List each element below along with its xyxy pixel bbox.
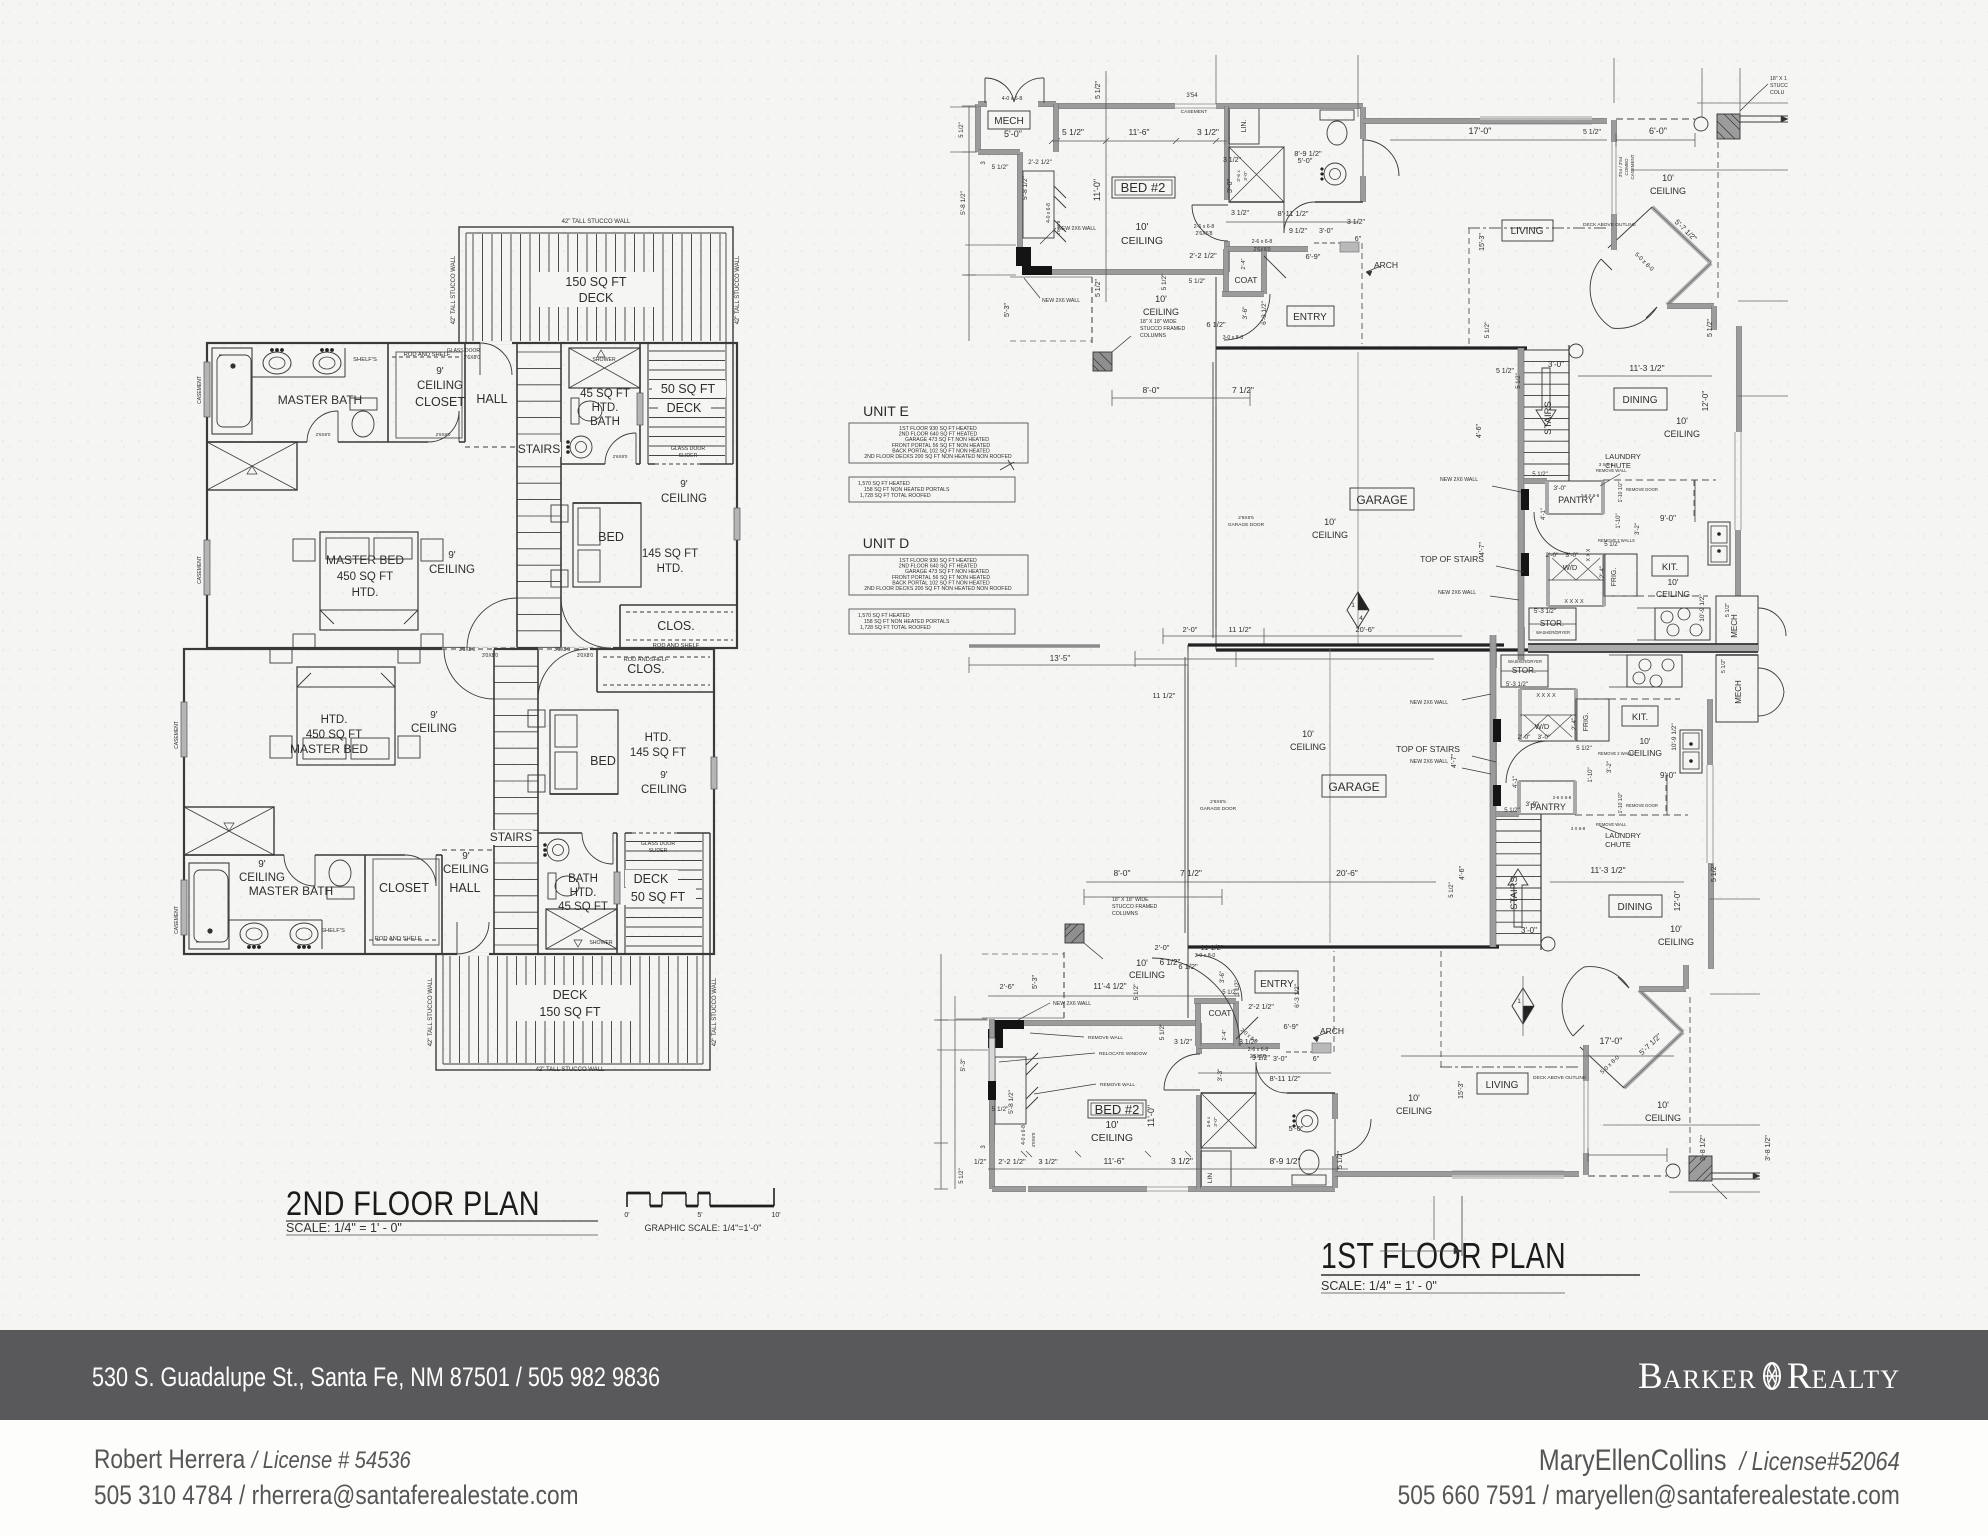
svg-text:9': 9' — [680, 479, 688, 490]
svg-text:6": 6" — [1313, 1056, 1320, 1063]
svg-text:2'-2 1/2": 2'-2 1/2" — [998, 1157, 1026, 1166]
svg-text:2-6 x 6-8: 2-6 x 6-8 — [1194, 224, 1215, 230]
svg-text:TOP OF STAIRS: TOP OF STAIRS — [1396, 744, 1460, 754]
svg-text:10': 10' — [1155, 294, 1167, 304]
svg-text:4'-6": 4'-6" — [1476, 424, 1483, 438]
svg-text:CLOSET: CLOSET — [415, 395, 465, 409]
svg-text:LIN.: LIN. — [1241, 120, 1248, 133]
svg-text:5'-3 1/2": 5'-3 1/2" — [1534, 609, 1556, 615]
svg-text:2'-0": 2'-0" — [1155, 943, 1170, 952]
svg-text:10': 10' — [1408, 1093, 1420, 1103]
svg-text:42" TALL STUCCO WALL: 42" TALL STUCCO WALL — [451, 255, 457, 324]
svg-text:5'-8 1/2": 5'-8 1/2" — [960, 190, 967, 214]
svg-text:3'-0": 3'-0" — [1554, 485, 1568, 492]
svg-text:MASTER BED: MASTER BED — [290, 742, 368, 756]
svg-text:6'-3 1/2": 6'-3 1/2" — [1294, 983, 1301, 1007]
svg-text:HTD.: HTD. — [321, 714, 348, 726]
svg-text:LIVING: LIVING — [1511, 226, 1544, 237]
svg-text:9': 9' — [660, 770, 668, 781]
svg-text:MASTER BATH: MASTER BATH — [278, 393, 362, 407]
svg-text:3'-0": 3'-0" — [1566, 552, 1580, 559]
svg-text:1'-10 1/2": 1'-10 1/2" — [1618, 792, 1624, 813]
svg-text:3'-0": 3'-0" — [1227, 179, 1234, 193]
svg-text:10': 10' — [1667, 577, 1678, 587]
svg-text:5'-0": 5'-0" — [1004, 129, 1022, 139]
svg-text:CASEMENT: CASEMENT — [1181, 109, 1208, 115]
svg-text:11'-0": 11'-0" — [1092, 179, 1102, 201]
svg-text:UNIT E: UNIT E — [863, 403, 909, 419]
svg-text:CEILING: CEILING — [1664, 429, 1700, 439]
svg-text:42" TALL STUCCO WALL: 42" TALL STUCCO WALL — [562, 219, 631, 225]
svg-text:X X X X: X X X X — [1564, 599, 1584, 605]
svg-text:CEILING: CEILING — [411, 723, 457, 735]
svg-text:5 1/2": 5 1/2" — [1449, 882, 1455, 897]
svg-text:3'0X8'0: 3'0X8'0 — [554, 647, 571, 653]
svg-text:6'-9": 6'-9" — [1284, 1022, 1299, 1031]
svg-text:5'-3": 5'-3" — [1004, 303, 1011, 317]
svg-text:HALL: HALL — [476, 392, 507, 406]
svg-text:SHOWER: SHOWER — [592, 357, 616, 363]
svg-text:NEW 2X6 WALL: NEW 2X6 WALL — [1042, 298, 1080, 304]
svg-text:8'-9 1/2": 8'-9 1/2" — [1269, 1156, 1300, 1166]
svg-text:MASTER BED: MASTER BED — [326, 553, 404, 567]
svg-text:DECK ABOVE OUTLINE: DECK ABOVE OUTLINE — [1533, 1075, 1586, 1081]
svg-text:3'-6": 3'-6" — [1220, 971, 1226, 983]
svg-text:4-0 x 6-8: 4-0 x 6-8 — [1021, 1125, 1027, 1145]
svg-text:3-0 x 8-0: 3-0 x 8-0 — [1223, 335, 1244, 341]
svg-text:DINING: DINING — [1623, 395, 1658, 406]
svg-text:DECK: DECK — [553, 988, 588, 1002]
svg-text:42" TALL STUCCO WALL: 42" TALL STUCCO WALL — [735, 255, 741, 324]
svg-text:2'-0": 2'-0" — [1546, 552, 1560, 559]
svg-text:5 1/2": 5 1/2" — [959, 122, 965, 137]
svg-text:LAUNDRY: LAUNDRY — [1605, 831, 1641, 840]
svg-text:5 1/2": 5 1/2" — [1095, 278, 1102, 297]
svg-text:9': 9' — [258, 859, 266, 870]
svg-text:3'-0": 3'-0" — [1538, 734, 1552, 741]
svg-text:3'-2": 3'-2" — [1635, 523, 1641, 535]
svg-text:3'-3": 3'-3" — [1217, 1068, 1224, 1082]
svg-text:1,728 SQ FT TOTAL ROOFED: 1,728 SQ FT TOTAL ROOFED — [860, 493, 931, 499]
svg-text:ROD AND SHELF: ROD AND SHELF — [653, 643, 700, 649]
svg-text:3'-0": 3'-0" — [1243, 171, 1249, 181]
svg-text:LIVING: LIVING — [1486, 1080, 1519, 1091]
svg-text:2'-4": 2'-4" — [1241, 258, 1247, 269]
svg-text:15'-3": 15'-3" — [1479, 233, 1486, 251]
svg-text:3'-8 1/2": 3'-8 1/2" — [1765, 1135, 1772, 1161]
svg-text:6": 6" — [1355, 236, 1362, 243]
svg-text:ARCH: ARCH — [1374, 260, 1398, 270]
svg-text:BED: BED — [598, 530, 624, 544]
svg-text:CEILING: CEILING — [1121, 235, 1163, 247]
svg-text:8'-0": 8'-0" — [1114, 868, 1131, 878]
svg-text:CEILING: CEILING — [429, 564, 475, 576]
svg-text:3: 3 — [981, 161, 987, 165]
svg-text:450 SQ FT: 450 SQ FT — [306, 729, 362, 741]
svg-text:2'-2 1/2": 2'-2 1/2" — [1248, 1004, 1274, 1011]
svg-text:5 1/2": 5 1/2" — [1496, 368, 1515, 375]
svg-text:150 SQ FT: 150 SQ FT — [539, 1005, 600, 1019]
svg-text:1: 1 — [1351, 602, 1355, 609]
svg-text:9': 9' — [462, 851, 470, 862]
svg-text:ROD AND SHELF: ROD AND SHELF — [375, 936, 422, 942]
svg-text:DECK: DECK — [579, 291, 614, 305]
svg-text:10': 10' — [1302, 729, 1314, 739]
svg-text:5 1/2": 5 1/2" — [1532, 472, 1547, 478]
svg-text:CEILING: CEILING — [1645, 1113, 1681, 1123]
svg-text:W/D: W/D — [1563, 563, 1578, 572]
svg-text:STOR.: STOR. — [1540, 619, 1564, 628]
svg-text:STUCCO FRAMED: STUCCO FRAMED — [1112, 904, 1158, 910]
svg-text:3'-6 x: 3'-6 x — [1236, 170, 1242, 182]
svg-text:10': 10' — [1662, 173, 1674, 183]
svg-text:STUCCO FRAMED: STUCCO FRAMED — [1140, 326, 1186, 332]
svg-text:SHELF'S: SHELF'S — [353, 357, 377, 363]
svg-text:2-6 X 6-8: 2-6 X 6-8 — [1553, 795, 1572, 800]
svg-text:0': 0' — [624, 1212, 629, 1219]
svg-text:2'-6": 2'-6" — [1000, 982, 1015, 991]
svg-text:11'-3 1/2": 11'-3 1/2" — [1590, 865, 1625, 875]
svg-text:2'-2 1/2": 2'-2 1/2" — [1028, 159, 1052, 166]
svg-text:5 1/2": 5 1/2" — [1189, 278, 1206, 285]
svg-text:7 1/2": 7 1/2" — [1180, 868, 1202, 878]
svg-text:4: 4 — [1359, 615, 1363, 622]
svg-text:STAIRS: STAIRS — [490, 830, 532, 844]
svg-text:50 SQ FT: 50 SQ FT — [661, 382, 716, 396]
svg-text:GRAPHIC SCALE: 1/4"=1'-0": GRAPHIC SCALE: 1/4"=1'-0" — [645, 1223, 762, 1233]
svg-text:1'-10": 1'-10" — [1616, 513, 1622, 528]
svg-text:10': 10' — [1135, 222, 1148, 233]
svg-text:5 1/2": 5 1/2" — [1721, 659, 1727, 673]
svg-text:3 1/2": 3 1/2" — [1223, 157, 1242, 164]
svg-text:9': 9' — [448, 550, 456, 561]
svg-text:5 1/2": 5 1/2" — [1161, 273, 1168, 290]
svg-text:3'-0": 3'-0" — [1548, 360, 1564, 369]
svg-text:2'6X6'5: 2'6X6'5 — [1238, 515, 1254, 521]
svg-text:5 1/2": 5 1/2" — [1516, 373, 1522, 388]
svg-text:5 1/2": 5 1/2" — [1484, 321, 1491, 338]
svg-text:COMBO: COMBO — [1624, 158, 1629, 176]
svg-text:REMOVE WALL: REMOVE WALL — [1088, 1035, 1123, 1041]
svg-text:5 1/2": 5 1/2" — [1062, 127, 1084, 137]
svg-text:6'-0": 6'-0" — [1649, 126, 1667, 136]
svg-text:DECK ABOVE OUTLINE: DECK ABOVE OUTLINE — [1583, 222, 1636, 228]
svg-text:GLASS DOOR: GLASS DOOR — [671, 446, 706, 452]
svg-text:LIN: LIN — [1207, 1173, 1214, 1183]
svg-text:FRIG.: FRIG. — [1611, 568, 1618, 587]
svg-text:50 SQ FT: 50 SQ FT — [631, 890, 686, 904]
svg-text:CEILING: CEILING — [1658, 937, 1694, 947]
svg-text:COLU: COLU — [1770, 90, 1785, 96]
svg-text:NEW 2X6 WALL: NEW 2X6 WALL — [1410, 700, 1448, 706]
svg-text:17'-0": 17'-0" — [1469, 126, 1492, 136]
svg-text:1/2": 1/2" — [974, 1159, 987, 1166]
svg-text:4'-6": 4'-6" — [1459, 866, 1466, 880]
svg-text:CEILING: CEILING — [1628, 748, 1662, 758]
svg-text:COLUMNS: COLUMNS — [1112, 911, 1138, 917]
svg-text:NEW 2X6 WALL: NEW 2X6 WALL — [1053, 1001, 1091, 1007]
svg-text:SCALE: 1/4" = 1' - 0": SCALE: 1/4" = 1' - 0" — [286, 1221, 402, 1235]
svg-text:STAIRS: STAIRS — [518, 442, 560, 456]
svg-text:5 1/2": 5 1/2" — [1725, 603, 1731, 617]
svg-text:HALL: HALL — [449, 881, 480, 895]
svg-text:9': 9' — [436, 366, 444, 377]
svg-text:CLOS.: CLOS. — [657, 619, 695, 633]
svg-text:X X X X: X X X X — [1536, 693, 1556, 699]
svg-text:COAT: COAT — [1235, 275, 1258, 285]
svg-text:SLIDER: SLIDER — [679, 453, 698, 459]
svg-text:3-6 x: 3-6 x — [1206, 1116, 1212, 1127]
svg-text:5 1/2": 5 1/2" — [1604, 542, 1619, 548]
svg-text:3 1/2": 3 1/2" — [1231, 210, 1250, 217]
svg-text:CASEMENT: CASEMENT — [197, 376, 203, 404]
svg-text:5 1/2": 5 1/2" — [1133, 983, 1140, 1000]
svg-text:MECH: MECH — [1734, 680, 1743, 704]
svg-text:5'-3 1/2": 5'-3 1/2" — [1506, 682, 1528, 688]
svg-text:3'-6": 3'-6" — [1242, 306, 1249, 320]
svg-text:1ST FLOOR PLAN: 1ST FLOOR PLAN — [1321, 1235, 1566, 1276]
svg-text:13'-5": 13'-5" — [1050, 654, 1071, 663]
svg-text:3'54 / 3'54: 3'54 / 3'54 — [1618, 156, 1623, 177]
svg-text:ROD ANDSHELF: ROD ANDSHELF — [623, 657, 669, 663]
svg-text:BATH: BATH — [590, 416, 620, 428]
svg-text:WASHER/DRYER: WASHER/DRYER — [1508, 659, 1542, 664]
svg-text:4-0 x 6-8: 4-0 x 6-8 — [1046, 203, 1052, 223]
svg-text:42" TALL STUCCO WALL: 42" TALL STUCCO WALL — [712, 977, 718, 1046]
svg-text:2'-4": 2'-4" — [1600, 566, 1606, 578]
svg-text:CEILING: CEILING — [1396, 1106, 1432, 1116]
svg-text:4'-1": 4'-1" — [1541, 508, 1547, 520]
svg-text:5 1/2": 5 1/2" — [992, 1106, 1009, 1113]
svg-text:CEILING: CEILING — [239, 872, 285, 884]
svg-text:ENTRY: ENTRY — [1293, 312, 1327, 323]
svg-text:4-0 x 6-8: 4-0 x 6-8 — [1002, 96, 1023, 102]
svg-text:3 1/2": 3 1/2" — [1171, 1156, 1193, 1166]
svg-text:CASEMENT: CASEMENT — [174, 721, 180, 749]
svg-text:3 1/2": 3 1/2" — [1197, 127, 1219, 137]
svg-text:NEW 2X6 WALL: NEW 2X6 WALL — [1410, 759, 1448, 765]
svg-text:20'-6": 20'-6" — [1355, 625, 1374, 634]
svg-text:3 1/2": 3 1/2" — [1239, 1039, 1258, 1046]
svg-text:WASHER/DRYER: WASHER/DRYER — [1536, 630, 1570, 635]
svg-text:6 1/2": 6 1/2" — [1206, 320, 1226, 329]
svg-text:MECH: MECH — [994, 116, 1023, 127]
svg-text:ROD AND SHELF: ROD AND SHELF — [404, 352, 451, 358]
svg-text:2'6X8'0: 2'6X8'0 — [316, 432, 331, 437]
svg-text:4'-1": 4'-1" — [1513, 776, 1519, 788]
svg-text:5 1/2": 5 1/2" — [1504, 808, 1519, 814]
svg-text:COAT: COAT — [1209, 1008, 1232, 1018]
svg-text:BED: BED — [590, 754, 616, 768]
svg-text:HTD.: HTD. — [570, 887, 597, 899]
svg-text:9'-0": 9'-0" — [1660, 514, 1676, 523]
svg-text:11 1/2": 11 1/2" — [1201, 943, 1224, 952]
svg-text:45 SQ FT: 45 SQ FT — [580, 388, 630, 400]
svg-text:10': 10' — [1105, 1120, 1118, 1131]
svg-text:CASEMENT: CASEMENT — [1630, 154, 1635, 179]
svg-text:3'-2": 3'-2" — [1607, 761, 1613, 773]
svg-text:GLASS DOOR: GLASS DOOR — [447, 348, 480, 354]
svg-text:2'6X8'0: 2'6X8'0 — [436, 432, 451, 437]
svg-text:HTD.: HTD. — [645, 732, 672, 744]
svg-text:45 SQ FT: 45 SQ FT — [558, 901, 608, 913]
svg-text:9 1/2": 9 1/2" — [1289, 228, 1308, 235]
svg-text:2'6X6'8: 2'6X6'8 — [1196, 231, 1213, 237]
svg-text:GARAGE DOOR: GARAGE DOOR — [1228, 522, 1265, 528]
svg-text:3 1/2": 3 1/2" — [1347, 219, 1366, 226]
svg-text:145 SQ FT: 145 SQ FT — [630, 747, 686, 759]
svg-text:GARAGE: GARAGE — [1356, 493, 1407, 507]
svg-text:11 1/2": 11 1/2" — [1153, 691, 1176, 700]
svg-text:10': 10' — [1676, 416, 1688, 426]
svg-text:NEW 2X6 WALL: NEW 2X6 WALL — [1058, 226, 1096, 232]
svg-text:3'0X8'0: 3'0X8'0 — [459, 647, 476, 653]
svg-text:CLOSET: CLOSET — [379, 881, 429, 895]
svg-text:2-6 x 6-8: 2-6 x 6-8 — [1248, 1047, 1269, 1053]
svg-text:HTD.: HTD. — [352, 587, 379, 599]
svg-text:FRIG.: FRIG. — [1583, 713, 1590, 732]
svg-text:DECK: DECK — [634, 872, 669, 886]
svg-text:CEILING: CEILING — [1656, 589, 1690, 599]
svg-text:8'-9 1/2": 8'-9 1/2" — [1294, 149, 1322, 158]
svg-text:5': 5' — [697, 1212, 702, 1219]
svg-text:5'-3": 5'-3" — [1032, 975, 1039, 989]
svg-text:2'-4": 2'-4" — [1222, 1029, 1228, 1040]
svg-text:TOP OF STAIRS: TOP OF STAIRS — [1420, 554, 1484, 564]
svg-text:REMOVE WALL: REMOVE WALL — [1596, 468, 1627, 473]
svg-text:10': 10' — [771, 1212, 780, 1219]
svg-text:CASEMENT: CASEMENT — [174, 906, 180, 934]
svg-text:12'-0": 12'-0" — [1701, 391, 1710, 412]
svg-text:10': 10' — [1136, 958, 1148, 968]
svg-text:REMOVE DOOR: REMOVE DOOR — [1626, 803, 1658, 808]
svg-text:18" X 18" WIDE: 18" X 18" WIDE — [1112, 897, 1149, 903]
svg-text:3'-0": 3'-0" — [1319, 228, 1333, 235]
svg-text:5'-8 1/2": 5'-8 1/2" — [1022, 175, 1029, 199]
svg-text:10': 10' — [1639, 736, 1650, 746]
svg-text:2'6X8'0: 2'6X8'0 — [1254, 247, 1271, 253]
svg-text:GLASS DOOR: GLASS DOOR — [641, 841, 676, 847]
svg-text:2'6X8'0: 2'6X8'0 — [1250, 1054, 1267, 1060]
svg-text:DINING: DINING — [1618, 902, 1653, 913]
svg-text:5: 5 — [1525, 1011, 1529, 1018]
svg-text:11'-3 1/2": 11'-3 1/2" — [1629, 363, 1664, 373]
svg-text:GARAGE: GARAGE — [1328, 780, 1379, 794]
svg-text:CEILING: CEILING — [1091, 1132, 1133, 1144]
svg-text:5 1/2": 5 1/2" — [1159, 1023, 1166, 1040]
svg-text:CEILING: CEILING — [1650, 186, 1686, 196]
svg-text:8'-11 1/2": 8'-11 1/2" — [1277, 209, 1308, 218]
svg-text:11'-6": 11'-6" — [1128, 127, 1149, 137]
svg-text:3 1/2": 3 1/2" — [1174, 1039, 1193, 1046]
svg-text:BATH: BATH — [568, 873, 598, 885]
svg-text:CHUTE: CHUTE — [1605, 840, 1631, 849]
svg-text:18" X 18" WIDE: 18" X 18" WIDE — [1140, 319, 1177, 325]
svg-text:LAUNDRY: LAUNDRY — [1605, 452, 1641, 461]
svg-text:10'-9 1/2": 10'-9 1/2" — [1671, 723, 1678, 751]
svg-text:7 1/2": 7 1/2" — [1232, 385, 1254, 395]
svg-text:450 SQ FT: 450 SQ FT — [337, 571, 393, 583]
svg-text:UNIT D: UNIT D — [863, 535, 909, 551]
svg-text:11'-6": 11'-6" — [1103, 1156, 1124, 1166]
svg-text:9'-0": 9'-0" — [1660, 771, 1676, 780]
svg-text:REMOVE DOOR: REMOVE DOOR — [1626, 487, 1658, 492]
svg-text:RELOCATE WINDOW: RELOCATE WINDOW — [1099, 1051, 1147, 1057]
svg-text:STOR.: STOR. — [1512, 666, 1536, 675]
svg-text:10': 10' — [1670, 924, 1682, 934]
svg-text:CEILING: CEILING — [1143, 307, 1179, 317]
svg-text:6'-9": 6'-9" — [1306, 252, 1321, 261]
svg-text:CEILING: CEILING — [1312, 530, 1348, 540]
svg-text:CEILING: CEILING — [641, 784, 687, 796]
svg-text:5 1/2": 5 1/2" — [1707, 318, 1714, 337]
svg-text:KIT.: KIT. — [1662, 562, 1678, 573]
svg-text:8'-0": 8'-0" — [1143, 385, 1160, 395]
svg-text:DECK: DECK — [667, 401, 702, 415]
svg-text:2ND FLOOR PLAN: 2ND FLOOR PLAN — [286, 1185, 540, 1223]
svg-text:2'-4": 2'-4" — [1572, 718, 1578, 730]
svg-text:COLUMNS: COLUMNS — [1140, 333, 1166, 339]
svg-text:STAIRS: STAIRS — [1509, 876, 1520, 910]
svg-text:5'-0": 5'-0" — [1289, 1124, 1304, 1133]
svg-text:5'-3": 5'-3" — [960, 1058, 967, 1072]
svg-text:3'0X8'0: 3'0X8'0 — [482, 653, 499, 659]
svg-text:5 1/2": 5 1/2" — [1222, 990, 1237, 996]
svg-text:11 1/2": 11 1/2" — [1229, 625, 1252, 634]
svg-text:3 X 6-8: 3 X 6-8 — [1599, 462, 1614, 467]
svg-text:1'-10": 1'-10" — [1588, 767, 1594, 782]
svg-text:MASTER BATH: MASTER BATH — [249, 884, 333, 898]
svg-text:HTD.: HTD. — [592, 402, 619, 414]
svg-text:5 1/2": 5 1/2" — [1583, 129, 1602, 136]
svg-text:10'-9 1/2": 10'-9 1/2" — [1699, 594, 1706, 622]
svg-text:W/D: W/D — [1535, 722, 1550, 731]
svg-text:3'-0": 3'-0" — [1213, 1117, 1219, 1127]
svg-text:3'-0": 3'-0" — [1273, 1056, 1287, 1063]
svg-text:5-0 x 8-0: 5-0 x 8-0 — [1633, 252, 1655, 273]
svg-text:X X X: X X X — [1586, 548, 1592, 561]
svg-text:17'-0": 17'-0" — [1600, 1036, 1623, 1046]
svg-text:REMOVE WALL: REMOVE WALL — [1100, 1082, 1135, 1088]
svg-text:5-0 x 8-0: 5-0 x 8-0 — [1600, 1054, 1622, 1075]
svg-text:CEILING: CEILING — [1290, 742, 1326, 752]
svg-text:9': 9' — [430, 710, 438, 721]
svg-text:STUCC: STUCC — [1770, 83, 1788, 89]
svg-text:ARCH: ARCH — [1320, 1026, 1344, 1036]
svg-text:2'-0": 2'-0" — [1518, 734, 1532, 741]
svg-text:2-6 X 6-8: 2-6 X 6-8 — [1581, 493, 1600, 498]
svg-text:10': 10' — [1657, 1100, 1669, 1110]
svg-text:12'-0": 12'-0" — [1673, 891, 1682, 912]
svg-text:CEILING: CEILING — [443, 864, 489, 876]
svg-text:5 1/2": 5 1/2" — [959, 1168, 965, 1183]
svg-text:CEILING: CEILING — [661, 493, 707, 505]
svg-text:145 SQ FT: 145 SQ FT — [642, 548, 698, 560]
svg-text:GARAGE DOOR: GARAGE DOOR — [1200, 806, 1237, 812]
svg-text:2'-0": 2'-0" — [1183, 625, 1198, 634]
svg-text:HTD.: HTD. — [657, 563, 684, 575]
svg-text:5 1/2": 5 1/2" — [1337, 1150, 1344, 1169]
svg-text:4'-7": 4'-7" — [1451, 754, 1458, 768]
svg-text:NEW 2X6 WALL: NEW 2X6 WALL — [1438, 590, 1476, 596]
svg-text:4'0X6'0: 4'0X6'0 — [1031, 1132, 1036, 1147]
svg-text:KIT.: KIT. — [1632, 712, 1648, 723]
svg-text:5 1/2": 5 1/2" — [1576, 746, 1591, 752]
svg-text:150 SQ FT: 150 SQ FT — [565, 275, 626, 289]
svg-text:10': 10' — [1324, 517, 1336, 527]
svg-text:5 1/2": 5 1/2" — [992, 164, 1009, 171]
svg-text:3 X 6-8: 3 X 6-8 — [1571, 826, 1586, 831]
